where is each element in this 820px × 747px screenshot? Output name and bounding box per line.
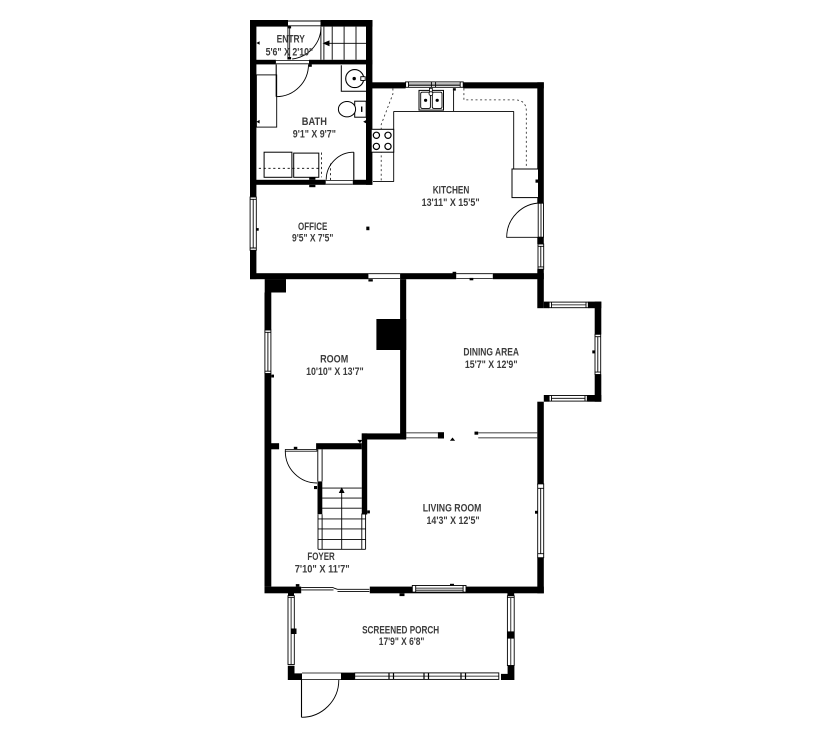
svg-text:9'1" X 9'7": 9'1" X 9'7" (293, 129, 336, 141)
svg-text:5'6" X 2'10": 5'6" X 2'10" (266, 47, 314, 59)
svg-text:DINING AREA: DINING AREA (463, 346, 519, 358)
svg-text:ROOM: ROOM (320, 353, 348, 365)
svg-text:OFFICE: OFFICE (298, 221, 327, 233)
svg-text:15'7" X 12'9": 15'7" X 12'9" (465, 359, 518, 371)
svg-text:17'9" X 6'8": 17'9" X 6'8" (379, 636, 425, 648)
svg-text:LIVING ROOM: LIVING ROOM (423, 502, 482, 514)
svg-text:13'11" X 15'5": 13'11" X 15'5" (422, 197, 480, 209)
svg-text:SCREENED PORCH: SCREENED PORCH (362, 625, 439, 637)
svg-text:BATH: BATH (302, 116, 327, 128)
svg-text:ENTRY: ENTRY (277, 34, 305, 46)
svg-text:7'10" X 11'7": 7'10" X 11'7" (295, 563, 350, 575)
svg-text:FOYER: FOYER (307, 551, 335, 563)
svg-text:14'3" X 12'5": 14'3" X 12'5" (427, 515, 480, 527)
svg-text:10'10" X 13'7": 10'10" X 13'7" (306, 366, 364, 378)
svg-text:9'5" X 7'5": 9'5" X 7'5" (292, 233, 333, 245)
svg-text:KITCHEN: KITCHEN (433, 185, 470, 197)
